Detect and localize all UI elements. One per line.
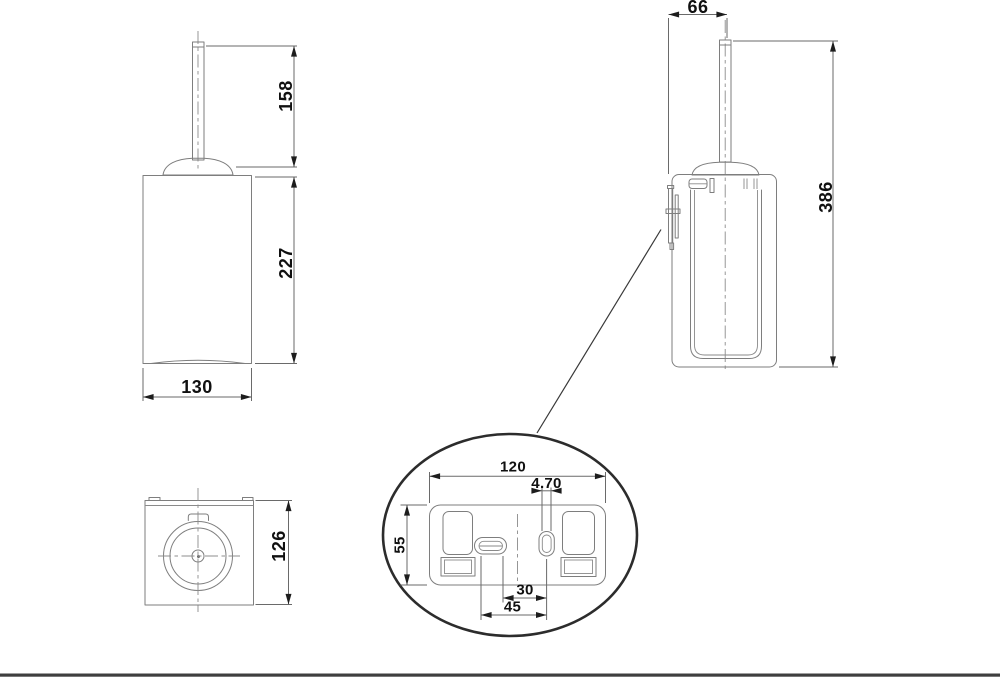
rim-tab — [710, 179, 714, 193]
footer-divider-bar — [0, 674, 1000, 677]
inner-cup-inner-wall — [695, 190, 758, 355]
bracket-top-cap — [668, 186, 674, 189]
top-outline — [145, 501, 254, 606]
dimension-plate-width: 120 — [430, 459, 606, 504]
dim-text-depth: 126 — [269, 530, 289, 562]
handle-center-mark — [197, 555, 200, 558]
dimension-depth: 126 — [256, 501, 293, 605]
dim-text-handle-height: 158 — [276, 80, 296, 112]
inner-cup-outer-wall — [691, 190, 762, 359]
dim-text-total-height: 386 — [816, 181, 836, 213]
dim-text-body-width: 130 — [181, 377, 213, 397]
dimension-body-width: 130 — [143, 368, 252, 401]
dimension-body-height: 227 — [255, 177, 297, 364]
dimension-wall-offset: 66 — [669, 0, 728, 174]
dimension-plate-height: 55 — [392, 505, 428, 585]
container-body — [143, 176, 252, 364]
technical-drawing-canvas: 158 227 130 66 — [0, 0, 1000, 680]
top-corner-tab-left — [149, 498, 160, 501]
dimension-slot-width: 4.70 — [531, 475, 561, 531]
left-keyhole-slot — [443, 512, 473, 555]
detail-leader-line — [537, 230, 661, 434]
right-hook-flap-inner — [565, 560, 593, 574]
dim-text-slot-spacing-inner: 30 — [516, 582, 533, 599]
dim-text-plate-width: 120 — [500, 459, 526, 476]
dim-text-slot-spacing-outer: 45 — [504, 599, 521, 616]
dim-text-plate-height: 55 — [392, 536, 409, 553]
dim-text-slot-width: 4.70 — [531, 475, 561, 492]
dimension-total-height: 386 — [733, 41, 838, 367]
left-hook-flap-inner — [445, 560, 472, 574]
mounting-plate-detail: 120 4.70 55 30 45 — [383, 434, 637, 636]
front-view: 158 227 130 — [143, 31, 297, 401]
top-corner-tab-right — [243, 498, 254, 501]
bracket-rail — [675, 195, 678, 238]
holder-frame — [672, 175, 777, 368]
front-view-geometry — [143, 31, 252, 364]
dimension-slot-spacing-outer: 45 — [481, 556, 547, 620]
mounting-plate-geometry — [430, 505, 606, 585]
side-view-geometry — [672, 20, 777, 372]
side-view: 66 386 — [666, 0, 838, 372]
right-keyhole-slot — [563, 512, 595, 555]
top-view: 126 — [145, 488, 292, 612]
wall-bracket — [666, 186, 680, 250]
vertical-slot-inner — [542, 535, 551, 553]
dim-text-wall-offset: 66 — [687, 0, 708, 17]
dim-text-body-height: 227 — [276, 247, 296, 279]
dimension-handle-height: 158 — [206, 46, 297, 167]
top-view-geometry — [145, 488, 254, 612]
